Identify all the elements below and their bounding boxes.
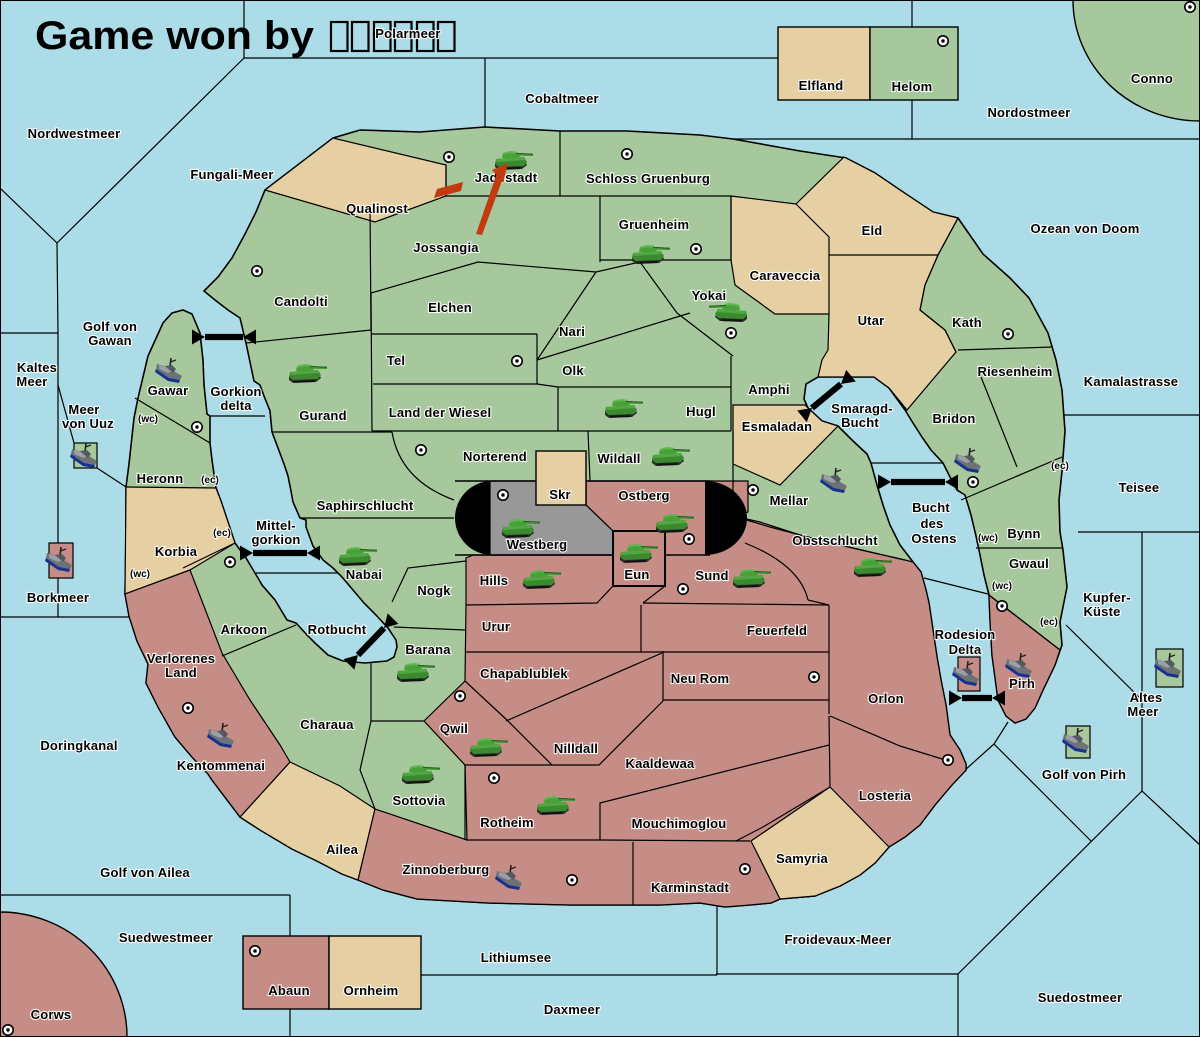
svg-text:Gruenheim: Gruenheim: [619, 217, 689, 232]
svg-text:Gawan: Gawan: [88, 333, 132, 348]
svg-text:Skr: Skr: [549, 487, 571, 502]
svg-text:(wc): (wc): [138, 414, 158, 425]
svg-text:Gurand: Gurand: [299, 408, 346, 423]
svg-text:Caraveccia: Caraveccia: [750, 268, 821, 283]
svg-text:Losteria: Losteria: [859, 788, 912, 803]
svg-text:Nogk: Nogk: [417, 583, 451, 598]
svg-text:Mittel-: Mittel-: [256, 518, 296, 533]
svg-text:Teisee: Teisee: [1119, 480, 1160, 495]
svg-text:Nabai: Nabai: [346, 567, 382, 582]
svg-text:Polarmeer: Polarmeer: [375, 26, 440, 41]
svg-text:Sund: Sund: [695, 568, 728, 583]
svg-text:Arkoon: Arkoon: [221, 622, 268, 637]
svg-text:(ec): (ec): [1051, 461, 1069, 472]
svg-text:Saphirschlucht: Saphirschlucht: [317, 498, 414, 513]
svg-text:Kath: Kath: [952, 315, 982, 330]
svg-text:Neu Rom: Neu Rom: [671, 671, 729, 686]
svg-text:Charaua: Charaua: [300, 717, 354, 732]
svg-text:Urur: Urur: [482, 619, 510, 634]
svg-text:Golf von Pirh: Golf von Pirh: [1042, 767, 1126, 782]
svg-text:Küste: Küste: [1083, 604, 1120, 619]
svg-text:Gorkion: Gorkion: [210, 384, 261, 399]
svg-text:Ornheim: Ornheim: [344, 983, 399, 998]
svg-text:von Uuz: von Uuz: [62, 416, 114, 431]
svg-text:Pirh: Pirh: [1009, 676, 1035, 691]
svg-text:Candolti: Candolti: [274, 294, 328, 309]
svg-text:Helom: Helom: [892, 79, 933, 94]
svg-text:Jossangia: Jossangia: [413, 240, 479, 255]
svg-text:Nordwestmeer: Nordwestmeer: [28, 126, 121, 141]
svg-text:Gwaul: Gwaul: [1009, 556, 1049, 571]
svg-text:Mellar: Mellar: [770, 493, 809, 508]
svg-text:Obstschlucht: Obstschlucht: [792, 533, 878, 548]
svg-text:Esmaladan: Esmaladan: [742, 419, 812, 434]
svg-text:Korbia: Korbia: [155, 544, 198, 559]
svg-text:Bynn: Bynn: [1007, 526, 1040, 541]
svg-text:Game won by: Game won by: [35, 14, 315, 58]
svg-text:(ec): (ec): [201, 475, 219, 486]
svg-text:Yokai: Yokai: [692, 288, 727, 303]
svg-text:Fungali-Meer: Fungali-Meer: [190, 167, 273, 182]
svg-text:(wc): (wc): [978, 533, 998, 544]
svg-text:Nilldall: Nilldall: [554, 741, 598, 756]
svg-text:Schloss Gruenburg: Schloss Gruenburg: [586, 171, 710, 186]
svg-text:Ostens: Ostens: [911, 531, 956, 546]
svg-text:Meer: Meer: [16, 374, 47, 389]
svg-text:Rotheim: Rotheim: [480, 815, 533, 830]
svg-text:Elfland: Elfland: [799, 78, 844, 93]
svg-text:Bridon: Bridon: [932, 411, 975, 426]
svg-text:Sottovia: Sottovia: [393, 793, 446, 808]
svg-text:Kaltes: Kaltes: [17, 360, 57, 375]
svg-text:Nari: Nari: [559, 324, 585, 339]
svg-text:(wc): (wc): [130, 569, 150, 580]
svg-text:Riesenheim: Riesenheim: [978, 364, 1053, 379]
svg-text:Rodesion: Rodesion: [935, 627, 996, 642]
svg-text:delta: delta: [220, 398, 252, 413]
svg-text:Abaun: Abaun: [268, 983, 309, 998]
svg-text:Lithiumsee: Lithiumsee: [481, 950, 552, 965]
svg-text:des: des: [920, 516, 943, 531]
svg-text:Land der Wiesel: Land der Wiesel: [389, 405, 492, 420]
svg-text:Samyria: Samyria: [776, 851, 829, 866]
svg-text:Land: Land: [165, 665, 197, 680]
svg-text:Eun: Eun: [624, 567, 649, 582]
svg-text:Froidevaux-Meer: Froidevaux-Meer: [784, 932, 891, 947]
svg-text:Verlorenes: Verlorenes: [147, 651, 216, 666]
svg-text:Ailea: Ailea: [326, 842, 359, 857]
svg-text:Amphi: Amphi: [748, 382, 789, 397]
svg-text:Jadestadt: Jadestadt: [475, 170, 538, 185]
svg-text:Tel: Tel: [387, 353, 405, 368]
svg-text:Zinnoberburg: Zinnoberburg: [403, 862, 490, 877]
svg-text:Feuerfeld: Feuerfeld: [747, 623, 807, 638]
svg-text:Orlon: Orlon: [868, 691, 904, 706]
svg-text:Hills: Hills: [480, 573, 508, 588]
svg-text:Kamalastrasse: Kamalastrasse: [1084, 374, 1178, 389]
svg-text:Kaaldewaa: Kaaldewaa: [625, 756, 695, 771]
svg-text:Westberg: Westberg: [507, 537, 568, 552]
svg-text:Olk: Olk: [562, 363, 584, 378]
svg-text:gorkion: gorkion: [251, 532, 300, 547]
svg-text:(ec): (ec): [213, 528, 231, 539]
svg-text:Conno: Conno: [1131, 71, 1173, 86]
svg-text:Karminstadt: Karminstadt: [651, 880, 730, 895]
svg-text:Suedostmeer: Suedostmeer: [1038, 990, 1123, 1005]
svg-text:Wildall: Wildall: [597, 451, 640, 466]
svg-text:Elchen: Elchen: [428, 300, 472, 315]
svg-text:Bucht: Bucht: [912, 500, 950, 515]
svg-text:Cobaltmeer: Cobaltmeer: [525, 91, 599, 106]
svg-text:Doringkanal: Doringkanal: [40, 738, 117, 753]
svg-text:Golf von Ailea: Golf von Ailea: [100, 865, 190, 880]
svg-text:Norterend: Norterend: [463, 449, 527, 464]
svg-text:Daxmeer: Daxmeer: [544, 1002, 600, 1017]
svg-text:Gawar: Gawar: [148, 383, 189, 398]
svg-text:Rotbucht: Rotbucht: [308, 622, 367, 637]
svg-text:Nordostmeer: Nordostmeer: [987, 105, 1070, 120]
svg-text:Chapablublek: Chapablublek: [480, 666, 568, 681]
svg-text:Kentommenai: Kentommenai: [177, 758, 265, 773]
svg-text:Ozean von Doom: Ozean von Doom: [1031, 221, 1140, 236]
svg-text:Bucht: Bucht: [841, 415, 879, 430]
svg-text:Suedwestmeer: Suedwestmeer: [119, 930, 213, 945]
svg-text:Meer: Meer: [1127, 704, 1158, 719]
svg-text:Borkmeer: Borkmeer: [27, 590, 89, 605]
svg-text:Meer: Meer: [68, 402, 99, 417]
svg-text:(wc): (wc): [992, 581, 1012, 592]
svg-text:Eld: Eld: [862, 223, 883, 238]
svg-text:Delta: Delta: [949, 642, 982, 657]
svg-text:Kupfer-: Kupfer-: [1083, 590, 1131, 605]
svg-text:Corws: Corws: [31, 1007, 72, 1022]
svg-text:Smaragd-: Smaragd-: [831, 401, 893, 416]
svg-text:Golf von: Golf von: [83, 319, 137, 334]
svg-text:(ec): (ec): [1040, 617, 1058, 628]
svg-text:Qualinost: Qualinost: [346, 201, 408, 216]
svg-text:Utar: Utar: [858, 313, 885, 328]
svg-text:Ostberg: Ostberg: [618, 488, 669, 503]
svg-text:Barana: Barana: [405, 642, 451, 657]
svg-text:Altes: Altes: [1130, 690, 1163, 705]
svg-text:Hugl: Hugl: [686, 404, 716, 419]
svg-text:Qwil: Qwil: [440, 721, 468, 736]
svg-text:Mouchimoglou: Mouchimoglou: [632, 816, 727, 831]
svg-text:Heronn: Heronn: [137, 471, 184, 486]
